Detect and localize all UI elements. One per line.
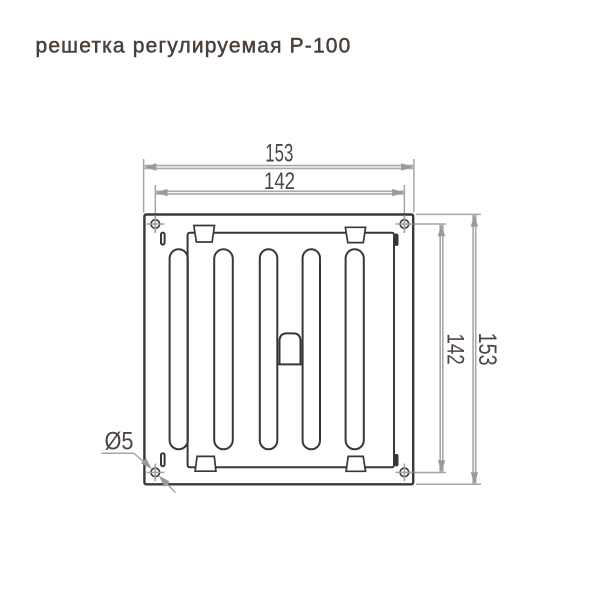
svg-text:142: 142 (442, 334, 469, 365)
svg-text:Ø5: Ø5 (105, 428, 134, 456)
svg-text:решетка регулируемая Р-100: решетка регулируемая Р-100 (36, 34, 352, 58)
svg-text:142: 142 (264, 168, 295, 195)
svg-text:153: 153 (473, 333, 501, 366)
svg-text:153: 153 (265, 140, 293, 168)
